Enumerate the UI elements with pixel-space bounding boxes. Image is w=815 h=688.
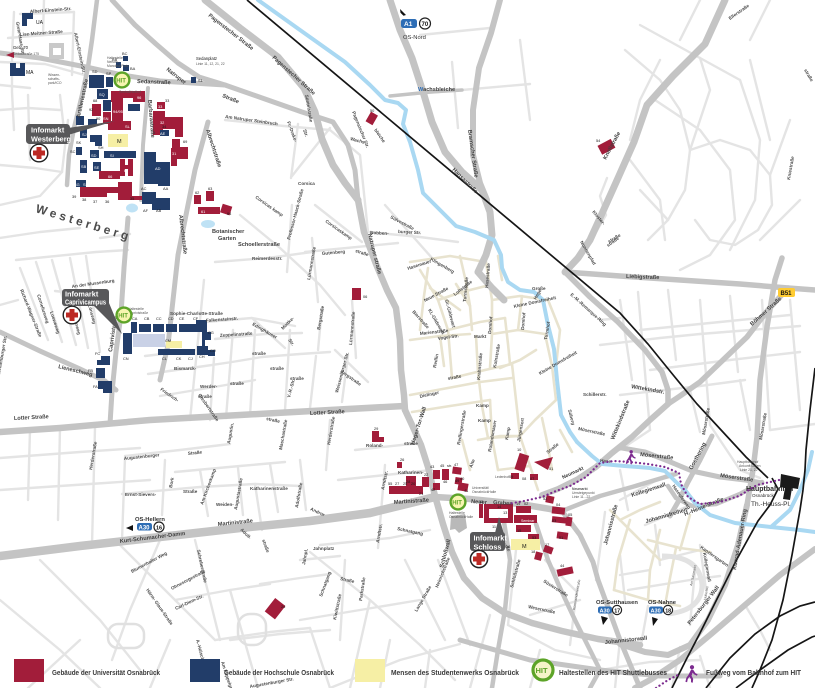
svg-text:AA: AA <box>163 186 169 191</box>
svg-text:67: 67 <box>124 168 128 173</box>
svg-text:Schillerstr.: Schillerstr. <box>583 392 607 397</box>
svg-text:25: 25 <box>403 481 407 486</box>
svg-text:05: 05 <box>568 512 572 517</box>
svg-text:27: 27 <box>395 481 399 486</box>
svg-text:SJ: SJ <box>82 132 87 137</box>
svg-text:straße: straße <box>252 351 266 356</box>
svg-text:33: 33 <box>158 104 162 109</box>
svg-text:Sedanplatz: Sedanplatz <box>196 56 217 61</box>
svg-text:CO: CO <box>210 348 216 353</box>
svg-text:HIT: HIT <box>116 78 126 84</box>
svg-text:FA: FA <box>93 384 98 389</box>
svg-text:Mandela-Platz: Mandela-Platz <box>107 64 129 68</box>
svg-text:HIT: HIT <box>452 500 462 506</box>
svg-text:62: 62 <box>195 190 199 195</box>
svg-text:CC: CC <box>156 316 162 321</box>
svg-text:straße: straße <box>404 441 418 446</box>
svg-text:CE: CE <box>179 316 185 321</box>
svg-text:BC: BC <box>122 51 128 56</box>
svg-text:SK: SK <box>76 140 82 145</box>
svg-text:55: 55 <box>388 481 392 486</box>
svg-text:Zentralfriedhof: Zentralfriedhof <box>119 90 141 94</box>
svg-text:str.: str. <box>447 463 452 468</box>
svg-text:Sedanstraße: Sedanstraße <box>137 79 171 86</box>
svg-text:straße: straße <box>230 381 244 386</box>
svg-text:OsnabrückHalle: OsnabrückHalle <box>449 515 473 519</box>
svg-text:Reimerdesstr.: Reimerdesstr. <box>252 256 282 261</box>
svg-text:46: 46 <box>443 479 447 484</box>
svg-text:Hase: Hase <box>600 458 612 464</box>
svg-text:CG: CG <box>208 330 214 335</box>
svg-text:Straße: Straße <box>183 489 198 494</box>
svg-text:straße: straße <box>198 394 212 399</box>
svg-text:53: 53 <box>532 535 536 540</box>
svg-text:Kamp: Kamp <box>478 418 491 423</box>
svg-text:Katharinenstraße: Katharinenstraße <box>250 486 288 491</box>
svg-text:Wachsbleiche: Wachsbleiche <box>418 87 455 93</box>
svg-text:16: 16 <box>506 544 510 549</box>
svg-text:18: 18 <box>531 549 535 554</box>
svg-text:31: 31 <box>172 151 176 156</box>
svg-text:Linie 11...22: Linie 11...22 <box>572 495 590 499</box>
svg-text:29: 29 <box>374 426 378 431</box>
svg-text:SD: SD <box>92 69 98 74</box>
svg-text:A1: A1 <box>404 21 413 28</box>
svg-text:Linie 21, 22: Linie 21, 22 <box>740 468 758 472</box>
svg-text:SG: SG <box>74 182 80 187</box>
svg-text:Seminar: Seminar <box>521 519 535 523</box>
svg-text:SF: SF <box>83 182 89 187</box>
svg-text:SE: SE <box>94 165 100 170</box>
svg-text:03: 03 <box>552 518 556 523</box>
svg-text:Mensen des Studentenwerks Osna: Mensen des Studentenwerks Osnabrück <box>391 668 519 677</box>
svg-text:A30: A30 <box>600 608 610 614</box>
svg-text:A30: A30 <box>139 526 151 532</box>
svg-text:Markt: Markt <box>474 334 487 339</box>
svg-text:42: 42 <box>431 487 435 492</box>
svg-text:AB: AB <box>156 208 162 213</box>
svg-text:SB: SB <box>81 164 87 169</box>
svg-text:17: 17 <box>545 542 549 547</box>
svg-text:Ernst-Sievers-: Ernst-Sievers- <box>125 492 157 497</box>
svg-text:35: 35 <box>130 196 134 201</box>
svg-text:Ledenhof: Ledenhof <box>495 475 509 479</box>
svg-text:Osnabrück: Osnabrück <box>752 493 775 498</box>
svg-text:08: 08 <box>522 476 526 481</box>
svg-text:FC: FC <box>95 351 100 356</box>
svg-text:CL: CL <box>162 356 168 361</box>
svg-text:32: 32 <box>160 120 164 125</box>
svg-text:SP: SP <box>106 71 112 76</box>
svg-text:Linie 11, 12, 21, 22: Linie 11, 12, 21, 22 <box>196 62 225 66</box>
svg-text:66: 66 <box>108 174 112 179</box>
svg-text:OsnabrückHalle: OsnabrückHalle <box>472 490 496 494</box>
svg-text:Infomarkt: Infomarkt <box>31 126 65 135</box>
svg-text:BA: BA <box>130 66 136 71</box>
svg-text:Bismarck-: Bismarck- <box>174 366 197 371</box>
svg-text:36: 36 <box>105 199 109 204</box>
svg-text:SH: SH <box>98 145 104 150</box>
svg-text:26: 26 <box>400 457 404 462</box>
svg-text:Haltestellen des HIT Shuttlebu: Haltestellen des HIT Shuttlebusses <box>559 668 667 677</box>
svg-text:Gebäude der Universität Osnabr: Gebäude der Universität Osnabrück <box>52 668 160 677</box>
svg-text:Geb. 70: Geb. 70 <box>13 45 29 50</box>
svg-text:CD: CD <box>168 316 174 321</box>
svg-text:69: 69 <box>183 139 187 144</box>
svg-text:12: 12 <box>479 499 483 504</box>
svg-text:92: 92 <box>89 107 93 112</box>
svg-text:MA: MA <box>26 70 34 76</box>
svg-text:13: 13 <box>503 510 507 515</box>
svg-text:SD: SD <box>91 153 97 158</box>
svg-text:Westerberg: Westerberg <box>31 135 71 144</box>
svg-text:37: 37 <box>93 199 97 204</box>
svg-text:AF: AF <box>143 208 149 213</box>
svg-text:S1: S1 <box>198 78 203 83</box>
svg-text:CF: CF <box>193 316 199 321</box>
svg-text:Jahnplatz: Jahnplatz <box>313 546 335 551</box>
svg-text:Kamp: Kamp <box>476 403 489 408</box>
svg-text:SQ: SQ <box>99 92 105 97</box>
svg-text:SC: SC <box>70 149 76 154</box>
svg-text:Sedanstraße 175: Sedanstraße 175 <box>13 52 39 56</box>
svg-text:HIT: HIT <box>536 666 549 675</box>
svg-text:33: 33 <box>165 98 169 103</box>
svg-text:63: 63 <box>208 186 212 191</box>
svg-text:SL: SL <box>125 124 131 129</box>
svg-text:A30: A30 <box>651 608 661 614</box>
svg-text:11: 11 <box>492 524 496 529</box>
svg-text:39: 39 <box>72 194 76 199</box>
svg-text:CJ: CJ <box>188 356 193 361</box>
svg-text:AC: AC <box>141 186 147 191</box>
svg-text:CN: CN <box>123 356 129 361</box>
svg-text:43: 43 <box>430 464 434 469</box>
svg-text:70: 70 <box>422 22 429 28</box>
svg-text:41: 41 <box>464 488 468 493</box>
svg-text:M: M <box>117 139 122 145</box>
svg-text:21: 21 <box>419 491 423 496</box>
svg-text:38: 38 <box>82 197 86 202</box>
svg-text:Th.-Heuss-Pl.: Th.-Heuss-Pl. <box>751 501 791 508</box>
svg-text:AD: AD <box>155 166 161 171</box>
svg-text:51: 51 <box>549 466 553 471</box>
svg-text:SI: SI <box>110 153 114 158</box>
svg-text:Gebäude der Hochschule Osnabrü: Gebäude der Hochschule Osnabrück <box>224 668 334 677</box>
svg-text:FB: FB <box>88 368 93 373</box>
svg-text:BB: BB <box>112 57 118 62</box>
svg-text:Schoellerstraße: Schoellerstraße <box>238 242 280 248</box>
svg-text:94/95: 94/95 <box>113 109 123 114</box>
svg-text:Fußweg vom Bahnhof zum HIT: Fußweg vom Bahnhof zum HIT <box>706 668 802 677</box>
svg-text:straße: straße <box>270 366 284 371</box>
svg-text:Caprivicampus: Caprivicampus <box>65 298 106 307</box>
svg-text:96: 96 <box>137 95 141 100</box>
svg-text:M: M <box>522 544 527 550</box>
svg-text:17: 17 <box>614 608 620 614</box>
svg-text:SN: SN <box>103 116 109 121</box>
svg-text:HIT: HIT <box>118 313 128 319</box>
svg-text:18: 18 <box>665 608 671 614</box>
svg-text:07: 07 <box>530 476 534 481</box>
svg-text:Infomarkt: Infomarkt <box>474 534 508 543</box>
svg-text:22: 22 <box>424 472 428 477</box>
svg-text:68: 68 <box>93 98 97 103</box>
svg-text:16: 16 <box>156 526 162 532</box>
svg-text:45: 45 <box>440 463 444 468</box>
svg-text:Botanischer: Botanischer <box>212 229 245 235</box>
svg-text:49: 49 <box>455 478 459 483</box>
svg-text:OS-Nord: OS-Nord <box>403 35 426 41</box>
svg-text:AE: AE <box>160 131 166 136</box>
svg-text:park/ICO: park/ICO <box>48 81 62 85</box>
svg-text:01: 01 <box>559 535 563 540</box>
svg-text:CB: CB <box>144 316 150 321</box>
svg-text:15: 15 <box>517 528 521 533</box>
svg-text:Weiden-: Weiden- <box>216 502 234 507</box>
svg-text:Roland-: Roland- <box>366 443 384 448</box>
svg-text:06: 06 <box>363 294 367 299</box>
svg-text:Werder-: Werder- <box>200 384 218 389</box>
svg-text:OS-Nahne: OS-Nahne <box>648 600 677 606</box>
svg-text:Katharinen-: Katharinen- <box>398 470 424 475</box>
svg-text:61: 61 <box>201 209 205 214</box>
svg-text:47: 47 <box>454 462 458 467</box>
svg-text:CK: CK <box>176 356 182 361</box>
svg-text:CH: CH <box>199 354 205 359</box>
svg-text:CA: CA <box>132 316 138 321</box>
svg-text:09: 09 <box>509 474 513 479</box>
svg-text:B51: B51 <box>781 291 793 297</box>
svg-text:UA: UA <box>36 20 44 26</box>
svg-text:Liebigstraße: Liebigstraße <box>626 274 659 281</box>
svg-text:Garten: Garten <box>218 236 237 242</box>
svg-text:CM: CM <box>165 338 171 343</box>
svg-text:Corsica: Corsica <box>298 181 315 186</box>
